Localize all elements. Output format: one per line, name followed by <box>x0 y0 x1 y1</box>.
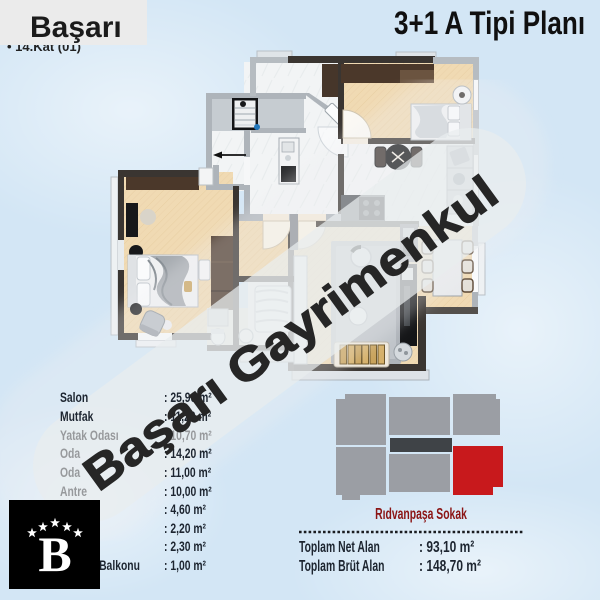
svg-text:Toplam Brüt Alan: Toplam Brüt Alan <box>299 557 384 575</box>
svg-text:: 10,00 m²: : 10,00 m² <box>164 483 212 499</box>
svg-text:: 148,70 m²: : 148,70 m² <box>419 556 481 574</box>
svg-text:B: B <box>38 526 71 582</box>
svg-text:Toplam Net Alan: Toplam Net Alan <box>299 538 380 556</box>
svg-text:: 11,00 m²: : 11,00 m² <box>164 464 211 480</box>
svg-text:: 4,60 m²: : 4,60 m² <box>164 501 206 517</box>
svg-text:: 2,20 m²: : 2,20 m² <box>164 520 206 536</box>
svg-text:Mutfak: Mutfak <box>60 408 93 424</box>
svg-text:Başarı: Başarı <box>30 11 122 44</box>
svg-text:Salon: Salon <box>60 389 88 405</box>
svg-text:Rıdvanpaşa Sokak: Rıdvanpaşa Sokak <box>375 505 467 523</box>
svg-text:Oda: Oda <box>60 464 80 480</box>
svg-text:3+1 A Tipi Planı: 3+1 A Tipi Planı <box>394 7 585 42</box>
svg-text:: 1,00 m²: : 1,00 m² <box>164 557 206 573</box>
svg-text:: 2,30 m²: : 2,30 m² <box>164 538 206 554</box>
svg-text:Antre: Antre <box>60 483 87 499</box>
svg-text:: 93,10 m²: : 93,10 m² <box>419 537 475 555</box>
